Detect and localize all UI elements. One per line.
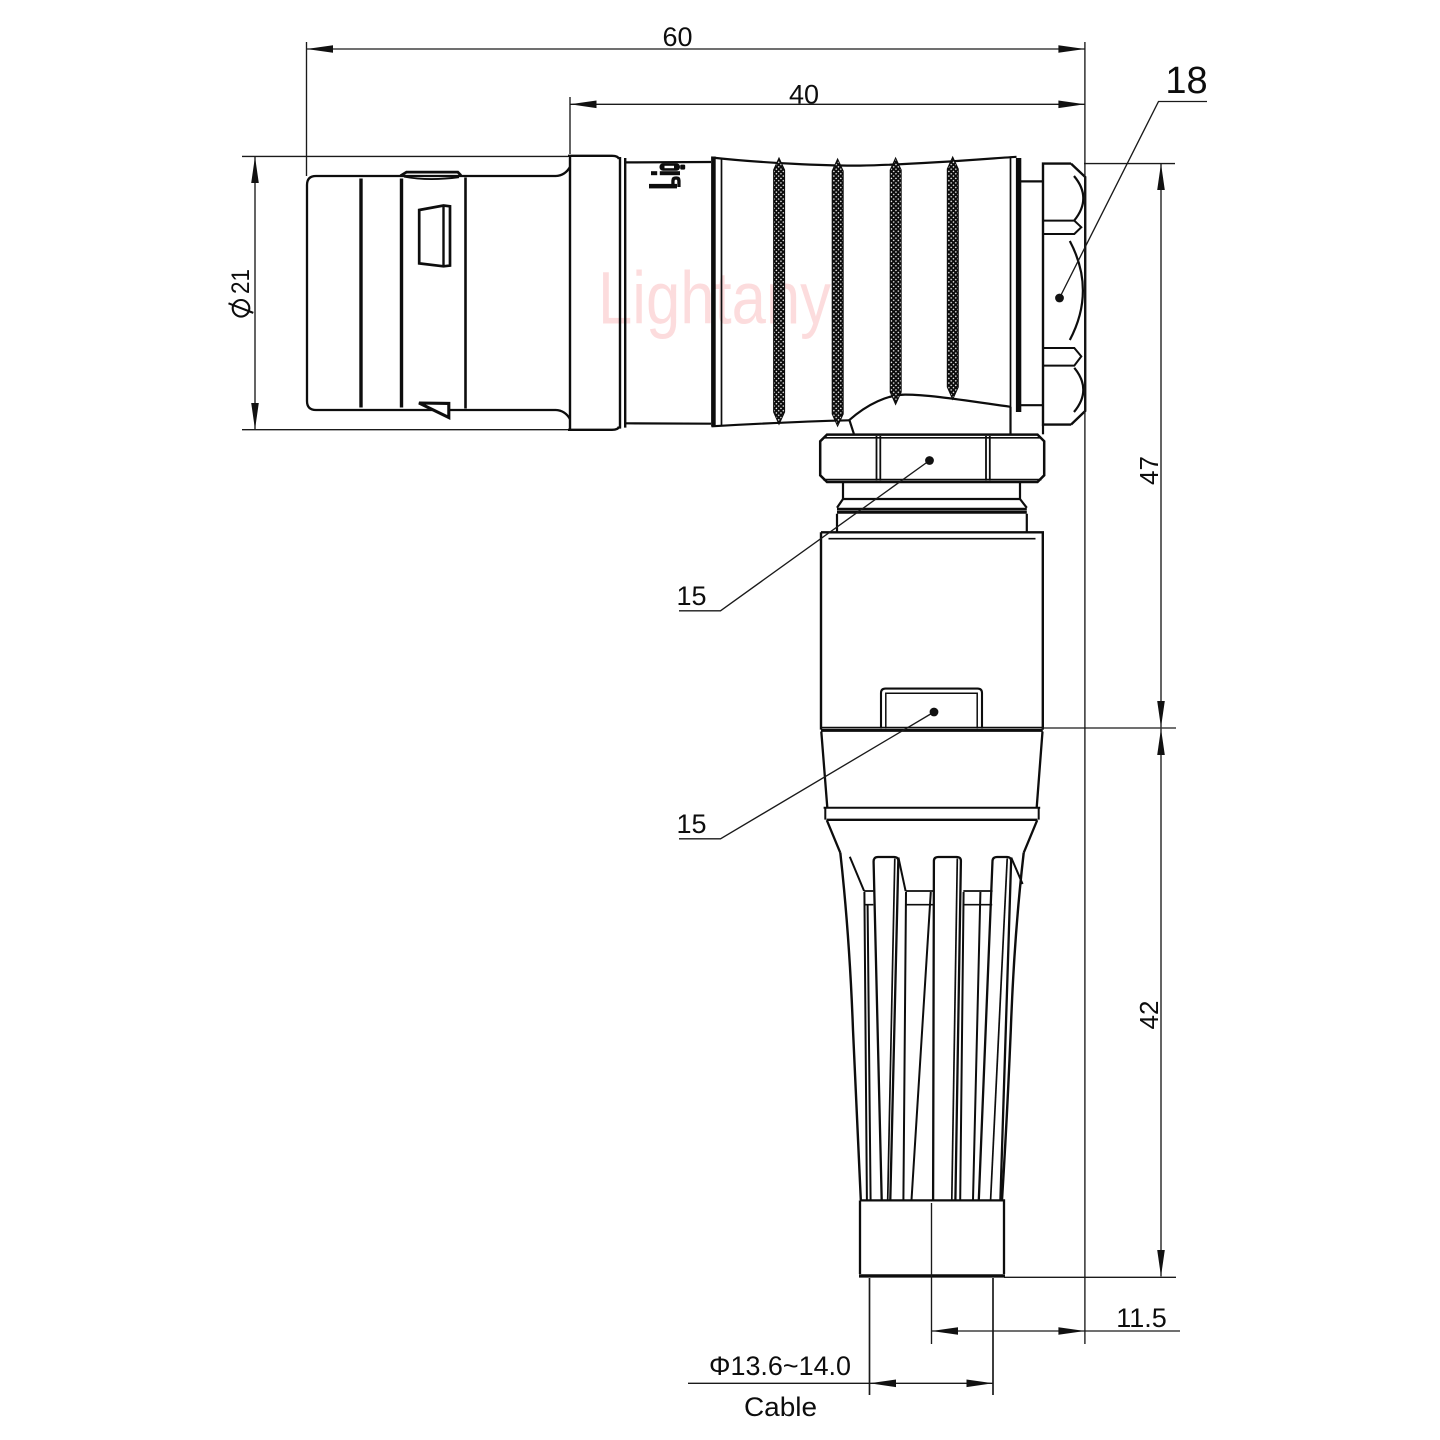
svg-text:21: 21 bbox=[227, 269, 255, 294]
svg-text:15: 15 bbox=[676, 809, 706, 839]
svg-text:42: 42 bbox=[1134, 1001, 1164, 1030]
svg-text:18: 18 bbox=[1165, 60, 1207, 102]
svg-text:Cable: Cable bbox=[744, 1392, 817, 1422]
svg-text:15: 15 bbox=[676, 581, 706, 611]
svg-text:40: 40 bbox=[789, 80, 819, 110]
svg-text:Φ13.6~14.0: Φ13.6~14.0 bbox=[709, 1351, 851, 1381]
svg-text:11.5: 11.5 bbox=[1116, 1303, 1167, 1333]
svg-text:47: 47 bbox=[1134, 456, 1164, 485]
svg-text:60: 60 bbox=[662, 22, 692, 52]
